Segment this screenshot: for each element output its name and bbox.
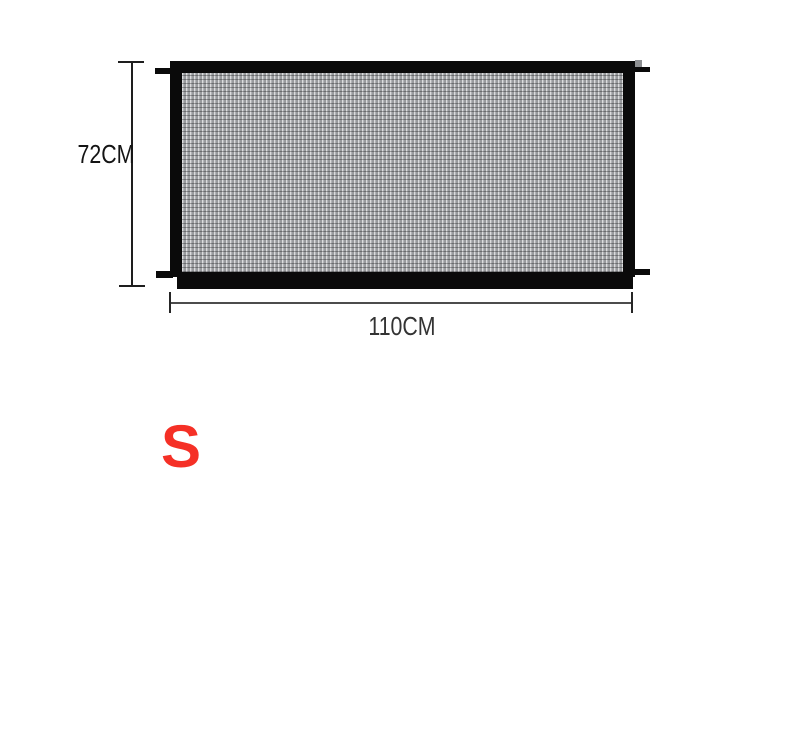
height-dimension-cap-bottom — [119, 285, 145, 287]
height-dimension-cap-top — [118, 61, 144, 63]
gate-corner-shadow — [635, 60, 642, 67]
gate-bottom-bar — [177, 276, 633, 289]
gate-tab-top-right — [634, 67, 650, 72]
height-dimension-line — [131, 62, 133, 287]
gate-tab-top-left — [155, 68, 172, 74]
gate-tab-bottom-right — [633, 269, 650, 275]
size-letter: S — [161, 417, 201, 477]
width-dimension-tick-left — [169, 292, 171, 313]
width-dimension-label: 110CM — [353, 313, 451, 339]
width-dimension-line — [170, 302, 633, 304]
gate-tab-bottom-left — [156, 271, 173, 278]
height-dimension-label: 72CM — [78, 141, 130, 167]
product-image: 72CM 110CM S — [0, 0, 787, 738]
gate-frame-with-mesh — [170, 61, 635, 277]
width-dimension-tick-right — [631, 292, 633, 313]
